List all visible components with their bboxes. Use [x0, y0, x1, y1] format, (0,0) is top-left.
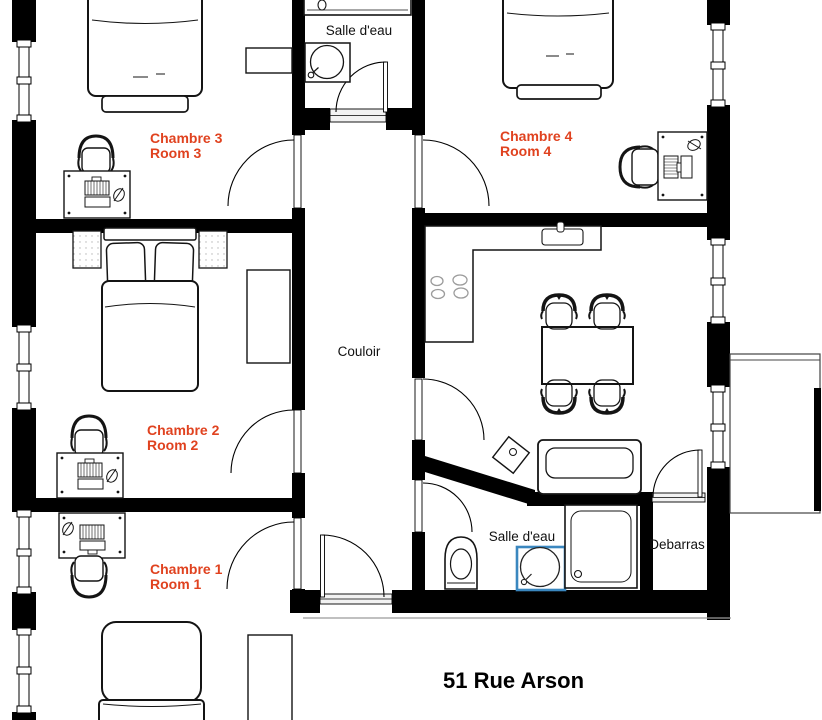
door-bathroom-bottom: [415, 480, 472, 532]
nightstand-right: [199, 231, 227, 268]
door-living-room: [415, 379, 484, 440]
shower-tray-top: [304, 0, 411, 15]
window-left-1: [17, 40, 31, 122]
floor-plan-canvas: [0, 0, 822, 720]
shower-bottom: [565, 505, 637, 588]
door-chambre4: [415, 135, 489, 208]
chair-chambre2: [71, 416, 106, 456]
balcony: [730, 354, 821, 513]
nightstand-left: [73, 231, 101, 268]
dining-chairs: [541, 295, 625, 413]
bathroom-bottom-fixtures: [445, 505, 637, 590]
window-left-4: [17, 628, 31, 713]
chambre4-furniture: [503, 0, 707, 200]
side-table: [493, 437, 529, 473]
window-left-3: [17, 510, 31, 594]
door-storage: [652, 450, 705, 502]
desk-chambre4: [658, 132, 707, 200]
bathroom-top-fixtures: [304, 0, 411, 82]
desk-chambre3: [64, 171, 130, 218]
door-chambre3: [228, 135, 301, 208]
window-left-2: [17, 325, 31, 410]
desk-chambre2: [57, 453, 123, 498]
chambre1-furniture: [59, 513, 292, 720]
wardrobe-chambre2: [247, 270, 290, 363]
kitchen-counter: [425, 222, 601, 342]
bed-chambre1: [99, 622, 204, 720]
door-entrance: [320, 535, 392, 604]
desk-chambre1: [59, 513, 125, 558]
sink-top: [305, 43, 350, 82]
chair-chambre1: [71, 556, 106, 597]
dining-table: [542, 327, 633, 384]
chambre2-furniture: [57, 228, 290, 498]
bed-chambre4: [503, 0, 613, 99]
window-right-3: [711, 385, 725, 469]
window-right-2: [711, 238, 725, 324]
bed-chambre3: [88, 0, 202, 112]
door-chambre1: [227, 518, 301, 589]
chair-chambre3: [78, 136, 113, 173]
door-chambre2: [231, 410, 301, 473]
kitchen-living: [425, 222, 641, 494]
window-right-1: [711, 23, 725, 107]
dining-chair-top-left: [541, 295, 577, 329]
chambre3-furniture: [64, 0, 292, 218]
sofa: [538, 440, 641, 494]
floor-plan: Chambre 3Room 3 Chambre 4Room 4 Chambre …: [0, 0, 822, 720]
wardrobe-chambre1: [248, 635, 292, 720]
toilet: [445, 537, 477, 589]
bed-chambre2: [102, 228, 198, 391]
dining-chair-top-right: [589, 295, 625, 329]
wardrobe-chambre3: [246, 48, 292, 73]
sink-bottom: [517, 547, 565, 590]
chair-chambre4: [620, 146, 658, 187]
